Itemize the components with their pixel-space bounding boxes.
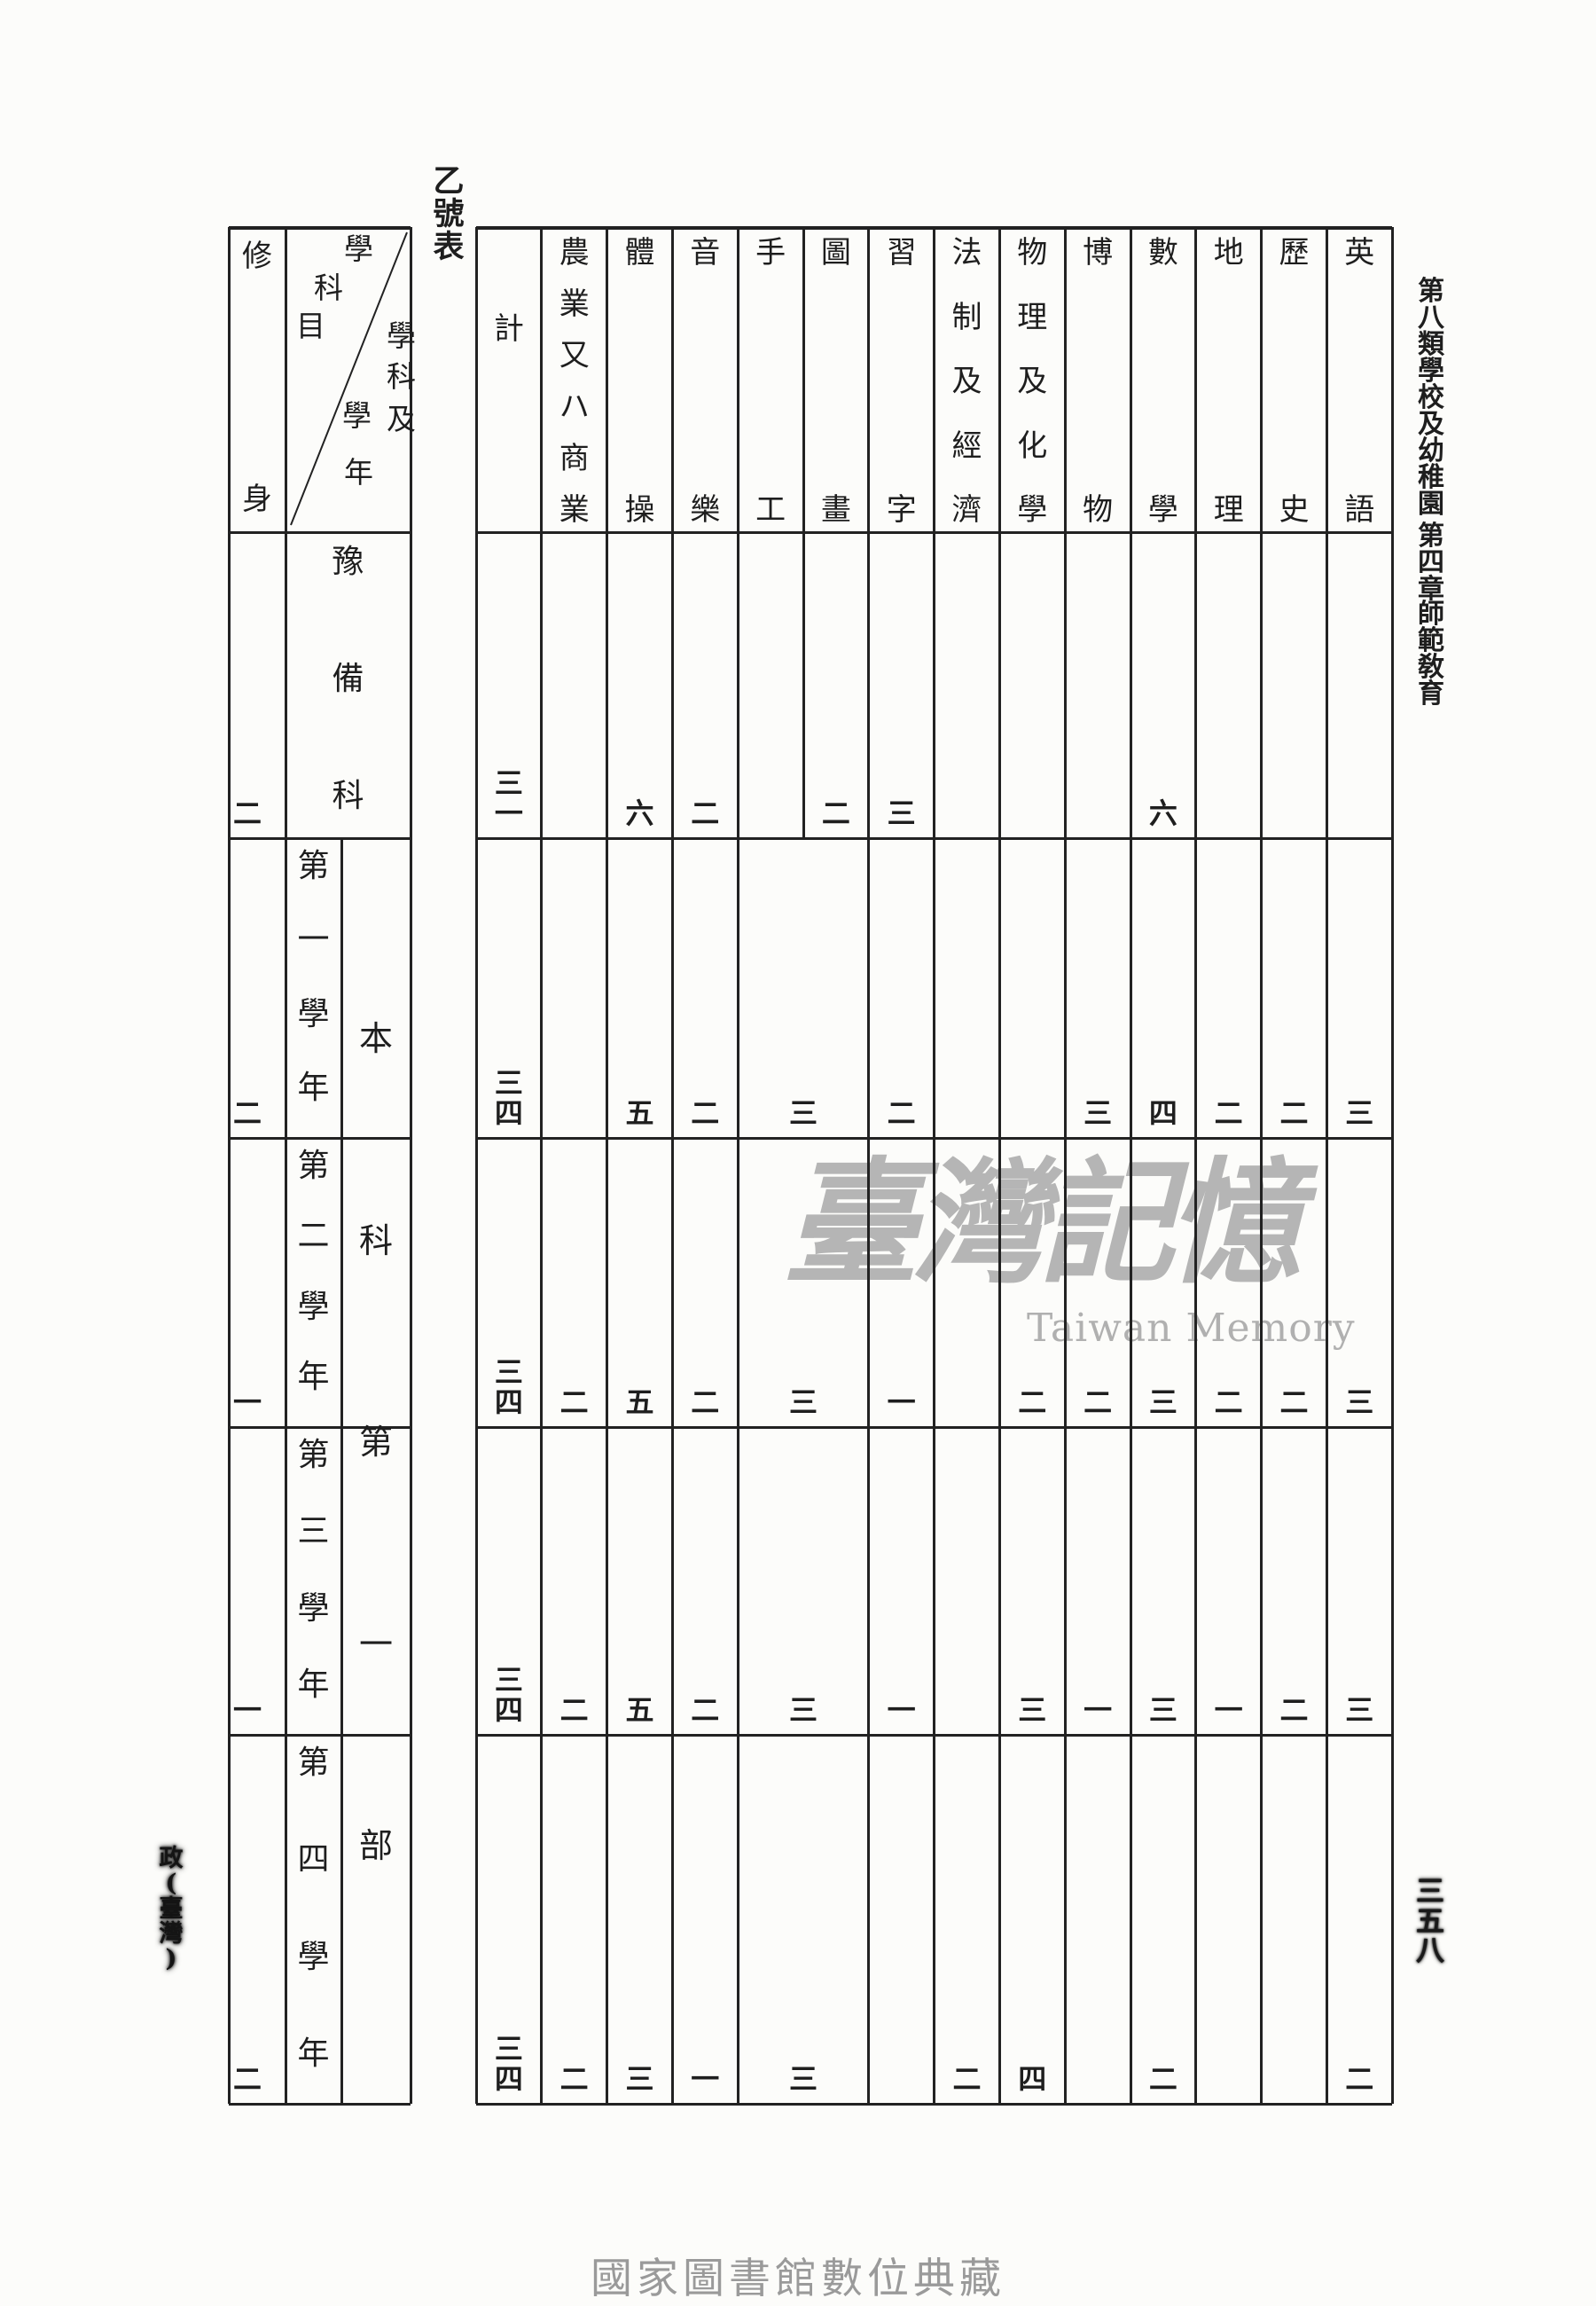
grid-line-vertical	[737, 227, 739, 2104]
glyph: 科	[332, 780, 364, 812]
grid-line-horizontal	[229, 2103, 411, 2106]
grid-line-vertical	[340, 838, 343, 2104]
column-header-0: 計	[492, 238, 526, 601]
glyph: 一	[359, 1628, 393, 1661]
glyph: 畫	[821, 495, 851, 525]
glyph: 備	[332, 663, 364, 695]
value-row-3-col-12: 二	[1279, 1695, 1310, 1726]
glyph: 化	[1017, 431, 1047, 461]
value-row-3-col-0: 三四	[493, 1665, 525, 1726]
corner-cell: 學科目學科及學年	[286, 227, 411, 532]
glyph: 豫	[332, 546, 364, 578]
corner-years-label-glyph: 科	[387, 362, 416, 391]
glyph: 史	[1279, 495, 1310, 525]
value-row-1-col-0: 三四	[493, 1068, 525, 1129]
value-row-2-col-13: 三	[1343, 1387, 1375, 1418]
column-header-3: 音樂	[688, 238, 722, 525]
grid-line-vertical	[228, 227, 231, 2104]
value-row-3-col-13: 三	[1343, 1695, 1375, 1726]
glyph: 年	[297, 2038, 329, 2070]
value-row-4-col-2: 三	[624, 2064, 656, 2095]
value-row-4-col-0: 三四	[493, 2034, 525, 2095]
glyph: 學	[1017, 495, 1047, 525]
value-row-0-col-10: 六	[1147, 798, 1179, 829]
row-label-prep-course: 豫備科	[331, 546, 366, 812]
corner-years-label-glyph: 年	[344, 458, 373, 487]
value-row-2-col-8: 二	[1016, 1387, 1048, 1418]
glyph: 理	[1017, 302, 1047, 333]
glyph: 學	[297, 1291, 329, 1323]
value-row-3-col-10: 三	[1147, 1695, 1179, 1726]
glyph: 一	[297, 924, 329, 956]
page-number: 三五八	[1415, 1877, 1445, 1966]
side-caption-category: 第八類	[1416, 278, 1446, 358]
corner-years-label-glyph: 學	[342, 401, 372, 430]
glyph: 手	[755, 238, 786, 268]
glyph: 理	[1214, 495, 1244, 525]
corner-years-label-glyph: 及	[387, 404, 416, 434]
glyph: 物	[1017, 238, 1047, 268]
value-row-1-col-13: 三	[1343, 1098, 1375, 1129]
watermark-cjk-text: 臺灣記憶	[784, 1114, 1295, 1309]
grid-line-vertical	[1326, 227, 1328, 2104]
glyph: 學	[297, 999, 329, 1031]
glyph: 部	[359, 1829, 393, 1863]
table-caption: 乙號表	[432, 165, 465, 263]
grid-line-vertical	[671, 227, 674, 2104]
glyph: 工	[755, 495, 786, 525]
archive-footer: 國家圖書館數位典藏	[0, 2244, 1596, 2305]
column-header-6: 習字	[885, 238, 919, 525]
column-header-5: 圖畫	[819, 238, 853, 525]
value-moral-training-row-0: 二	[231, 798, 263, 829]
value-craft-drawing-merged-row-3: 三	[787, 1695, 819, 1726]
grid-line-vertical	[475, 227, 478, 2104]
corner-years-label-glyph: 學	[387, 321, 416, 350]
glyph: 業	[559, 495, 590, 525]
glyph: 年	[297, 1361, 329, 1393]
glyph: 物	[1083, 495, 1113, 525]
value-row-1-col-2: 五	[624, 1098, 656, 1129]
value-row-0-col-5: 二	[820, 798, 852, 829]
column-header-9: 博物	[1081, 238, 1115, 525]
value-row-2-col-6: 一	[886, 1387, 918, 1418]
value-row-2-col-3: 二	[689, 1387, 721, 1418]
value-row-2-col-0: 三四	[493, 1357, 525, 1418]
glyph: 習	[887, 238, 917, 268]
column-header-1: 農業又ハ商業	[558, 238, 591, 525]
value-row-2-col-9: 二	[1082, 1387, 1114, 1418]
value-row-3-col-8: 三	[1016, 1695, 1048, 1726]
value-row-0-col-0: 三一	[493, 768, 525, 829]
value-row-2-col-2: 五	[624, 1387, 656, 1418]
glyph: 樂	[690, 495, 720, 525]
glyph: 操	[625, 495, 655, 525]
column-header-4: 手工	[754, 238, 787, 525]
glyph: 學	[297, 1941, 329, 1973]
glyph: 商	[559, 443, 590, 474]
glyph: 體	[625, 238, 655, 268]
glyph: 圖	[821, 238, 851, 268]
glyph: 制	[952, 302, 982, 333]
glyph: ハ	[559, 392, 590, 422]
value-row-4-col-1: 二	[559, 2064, 591, 2095]
grid-line-horizontal	[229, 837, 411, 840]
column-header-8: 物理及化學	[1015, 238, 1049, 525]
value-row-0-col-3: 二	[689, 798, 721, 829]
grid-line-vertical	[802, 227, 805, 838]
glyph: 第	[359, 1425, 393, 1459]
value-row-3-col-11: 一	[1213, 1695, 1245, 1726]
value-craft-drawing-merged-row-4: 三	[787, 2064, 819, 2095]
glyph: 第	[297, 1439, 329, 1471]
value-row-0-col-2: 六	[624, 798, 656, 829]
column-header-10: 數學	[1146, 238, 1180, 525]
row-label-year-2: 第二學年	[296, 1150, 332, 1393]
glyph: 學	[1148, 495, 1178, 525]
glyph: 字	[887, 495, 917, 525]
glyph: 修	[242, 241, 272, 271]
value-row-2-col-11: 二	[1213, 1387, 1245, 1418]
column-header-12: 歷史	[1278, 238, 1311, 525]
glyph: 經	[952, 431, 982, 461]
glyph: 第	[297, 851, 329, 882]
corner-subjects-label-glyph: 科	[314, 273, 343, 302]
glyph: 年	[297, 1072, 329, 1104]
corner-subjects-label-glyph: 目	[296, 311, 325, 341]
glyph: 音	[690, 238, 720, 268]
value-row-4-col-7: 二	[951, 2064, 983, 2095]
glyph: 農	[559, 238, 590, 268]
glyph: 又	[559, 341, 590, 371]
column-header-7: 法制及經濟	[951, 238, 984, 525]
glyph: 博	[1083, 238, 1113, 268]
value-moral-training-row-1: 二	[231, 1098, 263, 1129]
glyph: 本	[359, 1022, 393, 1055]
glyph: 語	[1344, 495, 1374, 525]
value-row-4-col-10: 二	[1147, 2064, 1179, 2095]
grid-line-vertical	[540, 227, 543, 2104]
row-label-year-1: 第一學年	[296, 851, 332, 1104]
glyph: 二	[297, 1220, 329, 1252]
value-row-2-col-10: 三	[1147, 1387, 1179, 1418]
value-row-3-col-6: 一	[886, 1695, 918, 1726]
glyph: 及	[952, 366, 982, 396]
column-header-2: 體操	[623, 238, 657, 525]
value-row-4-col-8: 四	[1016, 2064, 1048, 2095]
glyph: 濟	[952, 495, 982, 525]
value-moral-training-row-3: 一	[231, 1695, 263, 1726]
grid-line-vertical	[606, 227, 608, 2104]
value-craft-drawing-merged-row-2: 三	[787, 1387, 819, 1418]
glyph: 三	[297, 1516, 329, 1548]
glyph: 計	[494, 314, 524, 344]
column-header-13: 英語	[1342, 238, 1376, 525]
value-row-4-col-3: 一	[689, 2064, 721, 2095]
grid-line-vertical	[1391, 227, 1394, 2104]
value-row-0-col-6: 三	[886, 798, 918, 829]
column-header-moral-training: 修身	[240, 241, 274, 514]
value-row-3-col-3: 二	[689, 1695, 721, 1726]
column-header-11: 地理	[1212, 238, 1246, 525]
corner-subjects-label-glyph: 學	[344, 234, 373, 263]
value-row-3-col-9: 一	[1082, 1695, 1114, 1726]
value-row-3-col-1: 二	[559, 1695, 591, 1726]
glyph: 及	[1017, 366, 1047, 396]
glyph: 歷	[1279, 238, 1310, 268]
glyph: 學	[297, 1593, 329, 1625]
glyph: 業	[559, 289, 590, 319]
glyph: 身	[242, 484, 272, 514]
glyph: 年	[297, 1669, 329, 1701]
glyph: 第	[297, 1150, 329, 1182]
glyph: 英	[1344, 238, 1374, 268]
watermark-latin-text: Taiwan Memory	[1027, 1306, 1356, 1351]
glyph: 科	[359, 1224, 393, 1258]
side-caption-topic: 師範敎育	[1416, 601, 1446, 708]
value-row-1-col-3: 二	[689, 1098, 721, 1129]
glyph: 法	[952, 238, 982, 268]
glyph: 四	[297, 1844, 329, 1876]
side-caption-section: 學校及幼稚園	[1416, 358, 1446, 518]
glyph: 地	[1214, 238, 1244, 268]
glyph: 數	[1148, 238, 1178, 268]
row-label-year-4: 第四學年	[296, 1747, 332, 2070]
value-row-2-col-12: 二	[1279, 1387, 1310, 1418]
glyph: 第	[297, 1747, 329, 1779]
scanned-page: 乙號表 第八類 學校及幼稚園 第四章 師範敎育 三五八 政(臺灣) 學科目學科及…	[0, 0, 1596, 2306]
value-row-4-col-13: 二	[1343, 2064, 1375, 2095]
value-moral-training-row-4: 二	[231, 2064, 263, 2095]
value-row-2-col-1: 二	[559, 1387, 591, 1418]
value-moral-training-row-2: 一	[231, 1387, 263, 1418]
side-caption-chapter: 第四章	[1416, 523, 1446, 603]
row-label-year-3: 第三學年	[296, 1439, 332, 1701]
value-row-3-col-2: 五	[624, 1695, 656, 1726]
row-group-label-main-course: 本科第一部	[357, 1022, 395, 1863]
margin-note: 政(臺灣)	[156, 1847, 186, 1973]
